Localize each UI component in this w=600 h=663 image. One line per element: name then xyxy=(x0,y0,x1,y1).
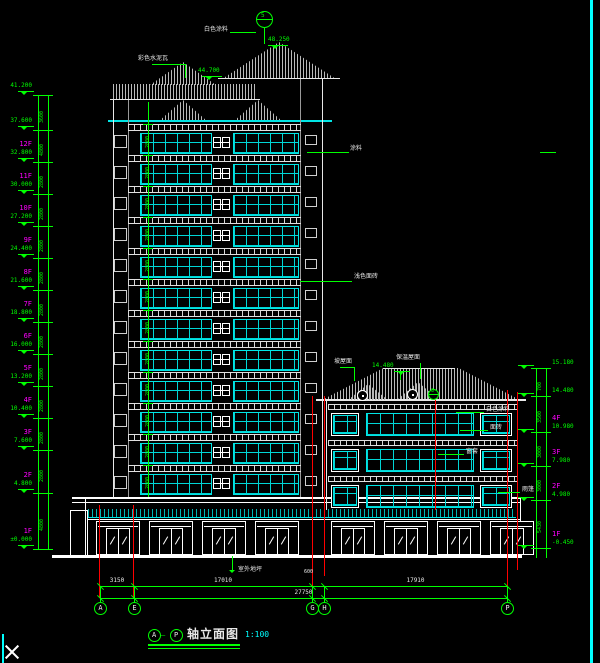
elevation-flag-icon xyxy=(21,287,27,293)
floor-label: 4F xyxy=(552,415,560,422)
small-building-eave xyxy=(316,399,526,401)
floor-label: 1F xyxy=(4,528,32,535)
elevation-value: 41.200 xyxy=(0,83,32,89)
storefront-door-mullion xyxy=(459,528,460,555)
floor-band xyxy=(128,248,301,255)
elevation-flag-icon xyxy=(21,383,27,389)
grid-bubble-letter: E xyxy=(128,605,141,612)
floor-label: 8F xyxy=(4,269,32,276)
title-scale: 1:100 xyxy=(245,631,269,639)
title-underline xyxy=(148,648,240,649)
storefront-transom xyxy=(333,526,373,527)
leader-line xyxy=(460,430,488,431)
core-window xyxy=(305,383,317,393)
dim-tick xyxy=(531,548,551,549)
floor-label: 2F xyxy=(4,472,32,479)
leader-line xyxy=(230,32,256,33)
window-grid xyxy=(366,449,474,472)
leader-line xyxy=(420,363,421,379)
dim-tick xyxy=(33,95,53,96)
elevation-value: 4.800 xyxy=(0,481,32,487)
floor-band xyxy=(328,440,518,446)
core-window xyxy=(305,414,317,424)
tower-left-roof xyxy=(113,84,255,99)
floor-label: 12F xyxy=(4,141,32,148)
axis-grid-line xyxy=(517,392,518,570)
leader-line xyxy=(340,367,354,368)
annotation-label: 雨篷 xyxy=(522,487,534,493)
tower-top-gable xyxy=(234,100,282,121)
annotation-label: 窗套 xyxy=(466,449,478,455)
podium-left-edge xyxy=(85,497,86,556)
window-grid xyxy=(233,350,299,371)
dim-tick xyxy=(33,226,53,227)
height-dim: 3600 xyxy=(40,110,45,122)
elevation-flag-icon xyxy=(521,498,527,504)
storefront-transom xyxy=(386,526,426,527)
balcony xyxy=(114,166,127,179)
storefront-transom xyxy=(98,526,138,527)
dim-total: 27750 xyxy=(100,590,507,596)
height-dim: 4800 xyxy=(40,519,45,531)
balcony xyxy=(114,290,127,303)
stair-window-mullion xyxy=(214,297,229,298)
stair-window-mullion xyxy=(214,452,229,453)
window-grid xyxy=(233,381,299,402)
annotation-label: 涂料 xyxy=(350,146,362,152)
core-window xyxy=(305,290,317,300)
elevation-value: 10.400 xyxy=(0,406,32,412)
leader-line xyxy=(540,152,556,153)
leader-line xyxy=(438,454,464,455)
core-window xyxy=(305,197,317,207)
bubble-stem xyxy=(507,586,508,602)
stair-window-mullion xyxy=(214,173,229,174)
gable-ornament-icon xyxy=(412,394,414,396)
leader-line xyxy=(300,281,352,282)
window-grid xyxy=(233,288,299,309)
height-dim: 2800 xyxy=(40,469,45,481)
height-dim: 2800 xyxy=(40,336,45,348)
elevation-flag-icon xyxy=(21,223,27,229)
leader-line xyxy=(307,152,349,153)
storefront-door-mullion xyxy=(118,528,119,555)
floor-label: 9F xyxy=(4,237,32,244)
title-bubble-left-letter: A xyxy=(152,632,156,639)
dim-value: 600 xyxy=(304,570,313,575)
dim-tick xyxy=(33,130,53,131)
leader-line xyxy=(268,45,288,46)
storefront-transom xyxy=(204,526,244,527)
storefront-door-mullion xyxy=(277,528,278,555)
cad-drawing-canvas[interactable]: A — P 轴立面图 1:100 28002800280028002800280… xyxy=(0,0,600,663)
elevation-flag-icon xyxy=(21,127,27,133)
storefront-door-mullion xyxy=(224,528,225,555)
title-underline xyxy=(148,644,240,646)
balcony xyxy=(114,352,127,365)
core-window xyxy=(305,352,317,362)
window-grid xyxy=(333,487,357,506)
annotation-label: 保温屋面 xyxy=(396,355,420,361)
dim-value: 17010 xyxy=(134,578,312,584)
core-window xyxy=(305,259,317,269)
grid-bubble-letter: A xyxy=(94,605,107,612)
height-dim: 5430 xyxy=(538,521,543,533)
leader-line xyxy=(185,64,186,78)
elevation-flag-icon xyxy=(21,415,27,421)
storefront-transom xyxy=(151,526,191,527)
annotation-label: 室外地坪 xyxy=(238,567,262,573)
elevation-flag-icon xyxy=(521,546,527,552)
height-dim: 2800 xyxy=(40,272,45,284)
dim-tick xyxy=(33,493,53,494)
height-dim: 2800 xyxy=(40,304,45,316)
annotation-label: 48.250 xyxy=(268,37,290,43)
storefront-transom xyxy=(257,526,297,527)
dim-tick xyxy=(33,386,53,387)
floor-band xyxy=(128,434,301,441)
tower-top-gable xyxy=(159,100,207,121)
floor-band xyxy=(128,279,301,286)
elevation-value: 14.480 xyxy=(552,388,574,394)
elevation-value: 4.980 xyxy=(552,492,570,498)
small-building-left-edge xyxy=(326,400,327,510)
dim-tick xyxy=(33,450,53,451)
floor-band xyxy=(128,217,301,224)
elevation-value: 18.800 xyxy=(0,310,32,316)
elevation-value: -0.450 xyxy=(552,540,574,546)
core-window xyxy=(305,166,317,176)
axis-grid-line xyxy=(324,396,325,576)
storefront-door-mullion xyxy=(353,528,354,555)
elevation-value: 16.000 xyxy=(0,342,32,348)
axis-grid-line xyxy=(435,400,436,510)
height-dim: 2800 xyxy=(40,240,45,252)
stair-window-mullion xyxy=(214,328,229,329)
window-grid xyxy=(482,451,510,470)
storefront-transom xyxy=(492,526,532,527)
annotation-label: 44.700 xyxy=(198,68,220,74)
elevation-value: 7.600 xyxy=(0,438,32,444)
stair-window-mullion xyxy=(214,359,229,360)
storefront-door-mullion xyxy=(406,528,407,555)
detail-callout-divider xyxy=(429,394,438,395)
window-grid xyxy=(233,412,299,433)
floor-band xyxy=(328,476,518,482)
dimension-line xyxy=(100,598,507,599)
tower-eave-cyan xyxy=(108,120,332,122)
height-dim: 2800 xyxy=(40,400,45,412)
dim-tick xyxy=(33,290,53,291)
annotation-label: 白色涂料 xyxy=(486,407,510,413)
stair-window-mullion xyxy=(214,421,229,422)
height-dim: 3500 xyxy=(538,411,543,423)
floor-label: 4F xyxy=(4,397,32,404)
gable-ornament-icon xyxy=(362,395,364,397)
floor-label: 10F xyxy=(4,205,32,212)
axis-grid-line xyxy=(507,390,508,598)
dim-tick xyxy=(33,162,53,163)
window-grid xyxy=(366,413,474,436)
floor-label: 3F xyxy=(552,449,560,456)
annotation-label: 14.480 xyxy=(372,363,394,369)
floor-label: 2F xyxy=(552,483,560,490)
core-window xyxy=(305,476,317,486)
dim-tick xyxy=(531,500,551,501)
title-text: 轴立面图 xyxy=(187,628,239,640)
detail-callout-number: 3 xyxy=(431,389,434,394)
window-grid xyxy=(233,133,299,154)
storefront-transom xyxy=(439,526,479,527)
balcony xyxy=(114,414,127,427)
annotation-label: 白色涂料 xyxy=(204,27,228,33)
tower-tall-roof xyxy=(222,42,336,79)
elevation-flag-icon xyxy=(21,351,27,357)
elevation-flag-icon xyxy=(272,46,278,52)
detail-callout-number: 5 xyxy=(261,13,265,19)
storefront-door-mullion xyxy=(512,528,513,555)
balcony xyxy=(114,135,127,148)
elevation-flag-icon xyxy=(21,191,27,197)
balcony xyxy=(114,197,127,210)
elevation-value: 15.180 xyxy=(552,360,574,366)
storefront-door-mullion xyxy=(171,528,172,555)
floor-band xyxy=(128,310,301,317)
floor-band xyxy=(128,372,301,379)
elevation-value: 37.600 xyxy=(0,118,32,124)
leader-line xyxy=(202,76,222,77)
window-grid xyxy=(233,164,299,185)
dim-tick xyxy=(531,466,551,467)
elevation-flag-icon xyxy=(21,447,27,453)
height-dim: 3000 xyxy=(538,480,543,492)
elevation-flag-icon xyxy=(21,255,27,261)
dim-tick xyxy=(531,432,551,433)
height-dim: 700 xyxy=(538,382,543,391)
leader-line xyxy=(354,367,355,381)
elevation-value: 13.200 xyxy=(0,374,32,380)
window-grid xyxy=(233,474,299,495)
floor-label: 3F xyxy=(4,429,32,436)
dimension-line xyxy=(100,586,507,587)
elevation-flag-icon xyxy=(521,430,527,436)
floor-label: 1F xyxy=(552,531,560,538)
dim-tick xyxy=(33,549,53,550)
window-grid xyxy=(366,485,474,508)
dim-tick xyxy=(33,258,53,259)
tower-left-roof-eave xyxy=(110,99,260,100)
window-grid xyxy=(233,257,299,278)
floor-band xyxy=(128,124,301,131)
leader-line xyxy=(152,64,186,65)
tower-right-edge xyxy=(322,79,323,497)
window-grid xyxy=(482,487,510,506)
dim-tick xyxy=(531,396,551,397)
dim-tick xyxy=(33,418,53,419)
floor-band xyxy=(128,465,301,472)
floor-label: 6F xyxy=(4,333,32,340)
window-grid xyxy=(233,443,299,464)
grid-bubble-letter: H xyxy=(318,605,331,612)
elevation-flag-icon xyxy=(21,159,27,165)
canopy-hatch xyxy=(88,509,516,518)
stair-window-mullion xyxy=(214,390,229,391)
dim-tick xyxy=(33,322,53,323)
annotation-label: 彩色水泥瓦 xyxy=(138,56,168,62)
annotation-label: 面砖 xyxy=(490,425,502,431)
stair-window-mullion xyxy=(214,142,229,143)
floor-band xyxy=(128,403,301,410)
leader-line xyxy=(264,28,265,44)
dim-tick xyxy=(531,368,551,369)
elevation-flag-icon xyxy=(521,464,527,470)
balcony xyxy=(114,445,127,458)
elevation-flag-icon xyxy=(21,490,27,496)
elevation-value: 30.000 xyxy=(0,182,32,188)
elevation-flag-icon xyxy=(521,366,527,372)
balcony xyxy=(114,476,127,489)
detail-callout-divider xyxy=(257,19,272,20)
balcony xyxy=(114,321,127,334)
elevation-value: ±0.000 xyxy=(0,537,32,543)
ground-line xyxy=(52,555,522,558)
core-window xyxy=(305,135,317,145)
elevation-flag-icon xyxy=(21,546,27,552)
height-dim: 2800 xyxy=(40,208,45,220)
title-separator: — xyxy=(161,632,165,639)
annotation-label: 坡屋面 xyxy=(334,359,352,365)
floor-label: 5F xyxy=(4,365,32,372)
title-bubble-right-letter: P xyxy=(174,632,178,639)
stair-window-mullion xyxy=(214,235,229,236)
window-grid xyxy=(233,195,299,216)
height-dim: 2800 xyxy=(40,176,45,188)
elevation-value: 7.980 xyxy=(552,458,570,464)
height-dim: 2800 xyxy=(40,368,45,380)
canopy-edge xyxy=(85,519,520,520)
elevation-flag-icon xyxy=(229,570,235,576)
floor-band xyxy=(128,155,301,162)
axis-grid-line xyxy=(312,396,313,598)
window-grid xyxy=(233,226,299,247)
core-window xyxy=(305,321,317,331)
height-dim: 3000 xyxy=(538,446,543,458)
viewport-border-right xyxy=(590,0,593,663)
balcony xyxy=(114,228,127,241)
dim-tick xyxy=(33,354,53,355)
elevation-flag-icon xyxy=(398,372,404,378)
height-dim: 2800 xyxy=(40,432,45,444)
elevation-value: 27.200 xyxy=(0,214,32,220)
leader-line xyxy=(456,412,484,413)
floor-band xyxy=(128,341,301,348)
elevation-flag-icon xyxy=(206,77,212,83)
dim-tick xyxy=(33,194,53,195)
dim-value: 17910 xyxy=(324,578,507,584)
annotation-label: 浅色面砖 xyxy=(354,274,378,280)
elevation-flag-icon xyxy=(21,319,27,325)
elevation-flag-icon xyxy=(521,394,527,400)
elevation-value: 21.600 xyxy=(0,278,32,284)
balcony xyxy=(114,259,127,272)
floor-band xyxy=(128,186,301,193)
elevation-flag-icon xyxy=(21,92,27,98)
core-window xyxy=(305,228,317,238)
floor-label: 11F xyxy=(4,173,32,180)
elevation-value: 32.800 xyxy=(0,150,32,156)
stair-window-mullion xyxy=(214,266,229,267)
dim-value: 3150 xyxy=(100,578,134,584)
inner-dim-chain xyxy=(148,102,149,497)
height-dim: 4800 xyxy=(40,144,45,156)
stair-window-mullion xyxy=(214,204,229,205)
balcony xyxy=(114,383,127,396)
window-grid xyxy=(333,451,357,470)
floor-label: 7F xyxy=(4,301,32,308)
stair-window-mullion xyxy=(214,483,229,484)
window-grid xyxy=(333,415,357,434)
elevation-value: 24.400 xyxy=(0,246,32,252)
grid-bubble-letter: P xyxy=(501,605,514,612)
viewport-border-left-fragment xyxy=(2,634,4,663)
core-window xyxy=(305,445,317,455)
elevation-value: 10.980 xyxy=(552,424,574,430)
leader-line xyxy=(498,492,520,493)
window-grid xyxy=(233,319,299,340)
